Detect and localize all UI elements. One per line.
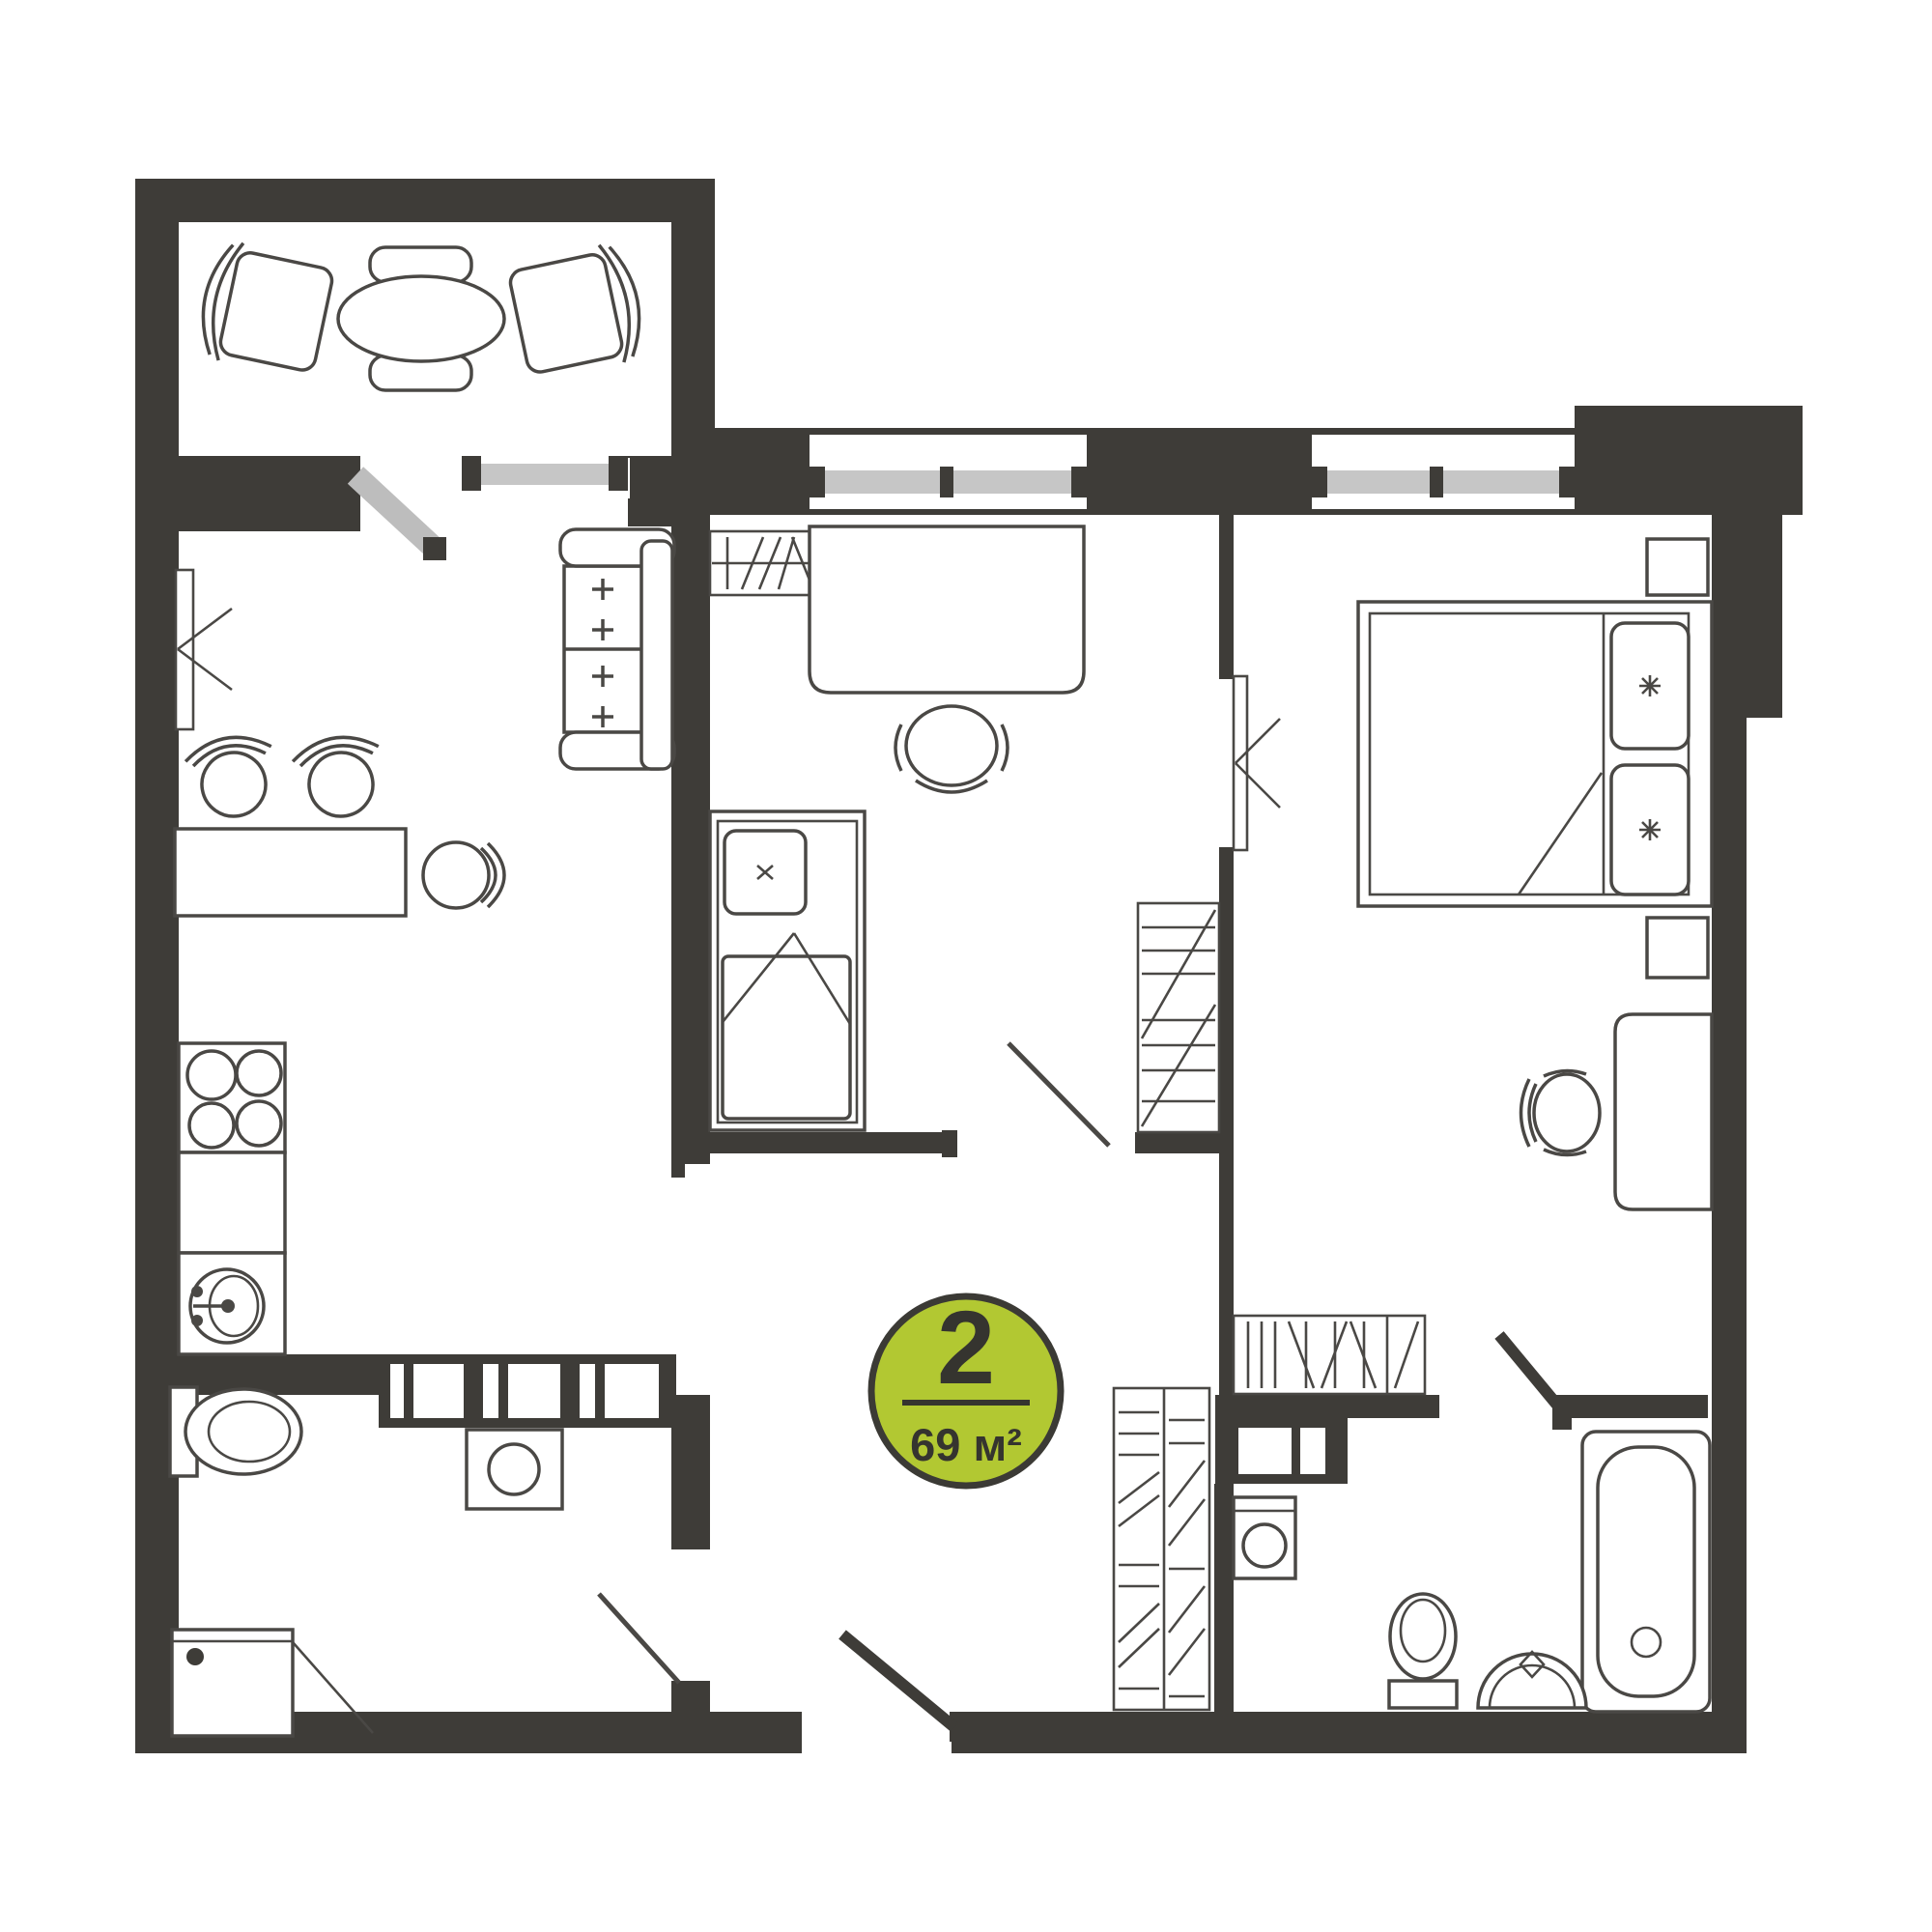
window-kitchen-balcony xyxy=(462,456,630,498)
wardrobe-middle-room-icon xyxy=(1138,903,1219,1132)
wc-door xyxy=(599,1594,679,1683)
double-bed-icon xyxy=(1358,602,1712,906)
kitchen-counter-icon xyxy=(179,1152,285,1253)
dresser-icon xyxy=(1615,1014,1712,1209)
oval-dining-table-icon xyxy=(338,276,504,361)
wardrobe-bedroom-icon xyxy=(1234,1316,1425,1394)
walls xyxy=(135,179,1803,1753)
wash-basin-icon xyxy=(1478,1652,1586,1708)
wc-washing-machine-icon xyxy=(467,1430,562,1509)
badge-rooms-count: 2 xyxy=(937,1289,995,1406)
floor-plan-page: 2 69 м² xyxy=(0,0,1932,1932)
round-chair-icon xyxy=(423,842,504,908)
armchair-left-icon xyxy=(193,238,336,380)
balcony-door xyxy=(355,475,446,560)
window-bedroom xyxy=(1312,435,1575,509)
desk-icon xyxy=(810,526,1084,693)
balcony-dining-set xyxy=(193,238,650,390)
pillow-icon xyxy=(1611,765,1689,895)
single-bed-icon xyxy=(710,811,865,1130)
bar-stool-icon xyxy=(290,730,389,823)
middle-room-door xyxy=(1009,1043,1109,1146)
bathroom-toilet-icon xyxy=(1389,1594,1457,1708)
sofa-icon xyxy=(560,529,674,769)
nightstand-icon xyxy=(1647,539,1708,595)
entry-door xyxy=(842,1634,954,1727)
office-chair-icon xyxy=(895,706,1008,792)
pillow-icon xyxy=(1611,623,1689,749)
bar-stool-icon xyxy=(183,730,282,823)
bathroom-washing-machine-icon xyxy=(1234,1497,1295,1578)
bathroom-door xyxy=(1499,1335,1560,1408)
bedroom-door xyxy=(1234,676,1280,850)
coat-rack-icon xyxy=(176,570,232,729)
area-badge: 2 69 м² xyxy=(871,1289,1061,1486)
badge-area-label: 69 м² xyxy=(910,1419,1022,1470)
floor-plan-drawing: 2 69 м² xyxy=(0,0,1932,1932)
wc-toilet-icon xyxy=(170,1387,301,1476)
armchair-right-icon xyxy=(506,240,649,382)
slotted-cabinet-icon xyxy=(379,1354,676,1428)
hallway-wardrobe-icon xyxy=(1114,1388,1209,1710)
window-middle-room xyxy=(810,435,1087,509)
bathtub-icon xyxy=(1582,1432,1710,1712)
pillow-icon xyxy=(724,831,806,914)
bedroom-chair-icon xyxy=(1521,1070,1601,1154)
nightstand-icon xyxy=(1647,918,1708,978)
kitchen-table-icon xyxy=(175,829,406,916)
kitchen-sink-icon xyxy=(179,1253,285,1354)
duct-shaft-icon xyxy=(1215,1418,1348,1484)
stove-icon xyxy=(179,1043,285,1152)
